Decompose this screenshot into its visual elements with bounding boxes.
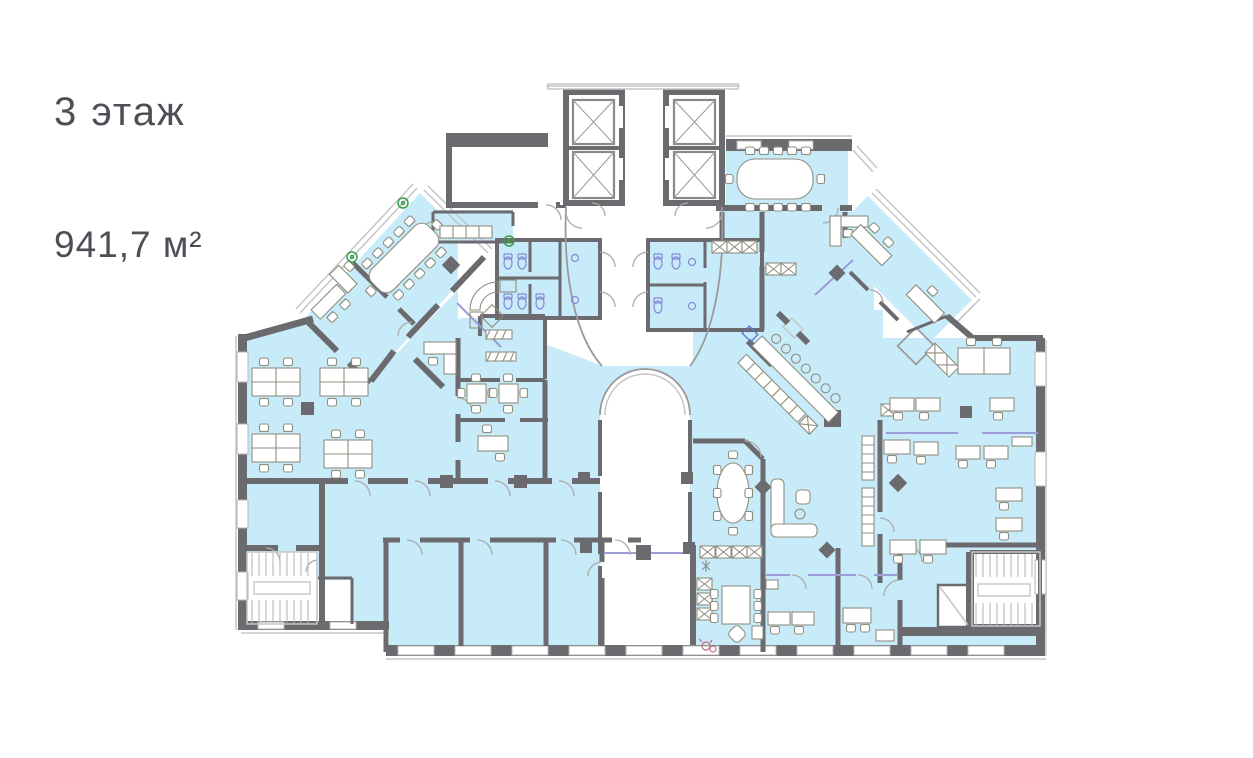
floor-plan-svg (0, 0, 1253, 758)
wall-meeting-top (716, 139, 852, 151)
atrium-void (600, 369, 690, 653)
elevator-shaft-2 (573, 152, 614, 198)
coat-bench (440, 226, 492, 238)
room-top-left-white (449, 147, 565, 205)
kitchen-lounge-zone (693, 310, 883, 583)
floor-plan-page: 3 этаж 941,7 м² (0, 0, 1253, 758)
elevator-shaft-4 (674, 152, 715, 198)
wall-top-left (446, 133, 548, 147)
elevator-shaft-1 (573, 100, 614, 144)
staircase-left-area (247, 552, 317, 624)
elevator-core (548, 84, 738, 205)
reception-room (460, 318, 545, 380)
elevator-shaft-3 (674, 100, 715, 144)
